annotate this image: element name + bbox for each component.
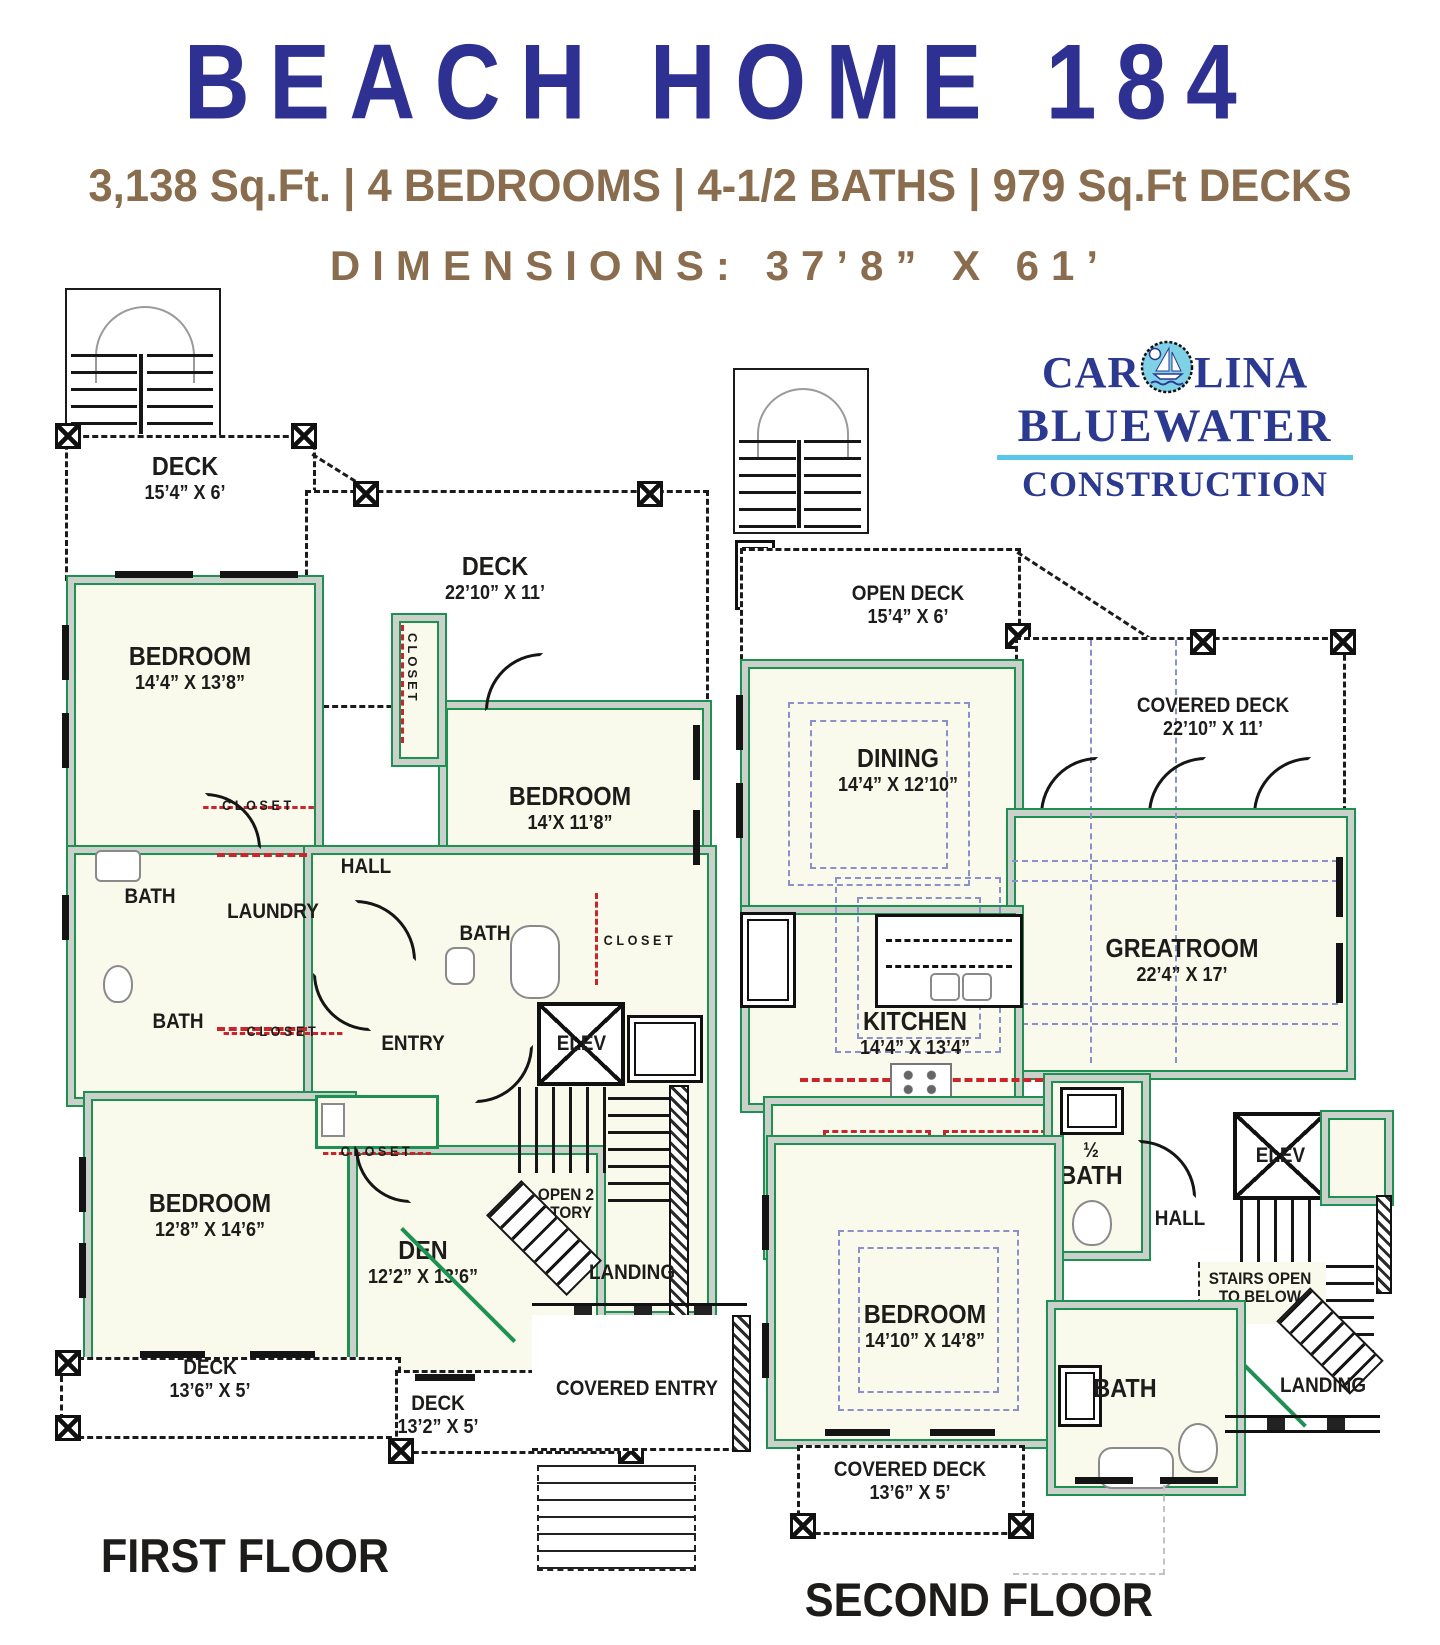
room-name: BEDROOM [129,1190,291,1218]
exterior-stairs-icon [65,288,221,440]
room-dims: 22’10” X 11’ [1123,719,1303,740]
room-dims: 13’2” X 5’ [366,1417,510,1438]
window [79,1243,86,1298]
window [762,1323,769,1378]
room-dims: 22’10” X 11’ [378,583,612,604]
room-dims: 14’4” X 13’8” [114,673,267,694]
closet-shelf [321,1103,345,1137]
room-name: KITCHEN [839,1008,992,1036]
deck-post-icon [637,481,663,507]
bedroom-right-label: BEDROOM 14’X 11’8” [485,783,656,834]
deck-diagonal [1016,551,1152,641]
room-name: DECK [378,553,612,581]
stair-treads [71,354,137,434]
covered-deck-bottom-label: COVERED DECK 13’6” X 5’ [825,1459,996,1504]
room-dims: 14’4” X 13’4” [839,1038,992,1059]
open-deck-label: OPEN DECK 15’4” X 6’ [836,583,980,628]
dining-label: DINING 14’4” X 12’10” [817,745,979,796]
exterior-stairs-icon [733,368,869,534]
room-dims: 14’4” X 12’10” [817,775,979,796]
room-name: BATH [1050,1162,1133,1190]
window [1336,857,1343,917]
elevator: ELEV [1233,1112,1327,1200]
toilet-icon [1072,1200,1112,1246]
half-bath-label: ½ BATH [1050,1140,1133,1190]
sink-icon [445,947,475,985]
sink-icon [962,973,992,1001]
room-name: COVERED DECK [1123,695,1303,717]
closet-vertical-label: CLOSET [405,633,420,704]
den-label: DEN 12’2” X 13’6” [347,1237,500,1288]
stair-divider [797,440,801,528]
island-counter-line [886,939,1012,942]
deck-post-icon [790,1513,816,1539]
deck-post-icon [353,481,379,507]
toilet-icon toilet [95,850,141,882]
greatroom-label: GREATROOM 22’4” X 17’ [1092,935,1272,986]
window [693,810,700,865]
room-name: GREATROOM [1092,935,1272,963]
bedroom-label: BEDROOM 14’10” X 14’8” [844,1301,1006,1352]
stair-divider [139,354,143,434]
covered-deck-top-label: COVERED DECK 22’10” X 11’ [1123,695,1303,740]
deck-post-icon [1330,629,1356,655]
closet-right-label: CLOSET [588,933,692,950]
interior-stairs [518,1087,608,1173]
room-name: COVERED DECK [825,1459,996,1481]
elevator: ELEV [537,1002,625,1086]
window [140,1351,205,1358]
specs-line: 3,138 Sq.Ft. | 4 BEDROOMS | 4-1/2 BATHS … [22,160,1419,212]
closet-rod [595,893,598,985]
page-title: BEACH HOME 184 [22,20,1419,143]
toilet-icon [1178,1423,1218,1473]
door-arc [1138,1140,1196,1198]
window [825,1429,890,1436]
deck-post-icon [55,1350,81,1376]
room-name: DECK [138,1357,282,1379]
room-dims: 14’10” X 14’8” [844,1331,1006,1352]
window [250,1351,315,1358]
hall-label: HALL [1126,1208,1234,1230]
covered-entry-label: COVERED ENTRY [552,1378,723,1400]
bath-label: BATH [1071,1375,1179,1403]
closet-mid-label: CLOSET [233,1024,334,1041]
room-name: DINING [817,745,979,773]
entry-label: ENTRY [359,1033,467,1055]
hall-label: HALL [312,856,420,878]
window [115,571,193,578]
window [693,725,700,780]
first-floor-caption: FIRST FLOOR [98,1528,392,1583]
window [736,695,743,750]
stair-treads [804,440,861,528]
sink-icon [1060,1087,1124,1135]
landing-label: LANDING [1265,1375,1382,1397]
kitchen-label: KITCHEN 14’4” X 13’4” [839,1008,992,1059]
window [930,1429,995,1436]
deck-bottom-center-label: DECK 13’2” X 5’ [366,1393,510,1438]
bath-left-label: BATH [96,886,204,908]
window [736,783,743,838]
entry-steps [537,1465,696,1571]
room-dims: 15’4” X 6’ [836,607,980,628]
cooktop-icon [890,1063,952,1101]
half-fraction: ½ [1050,1140,1133,1162]
elevator-side-box [627,1015,703,1083]
island-counter-line [886,965,1012,968]
bedroom-top [68,577,322,859]
deck-post-icon [55,423,81,449]
fridge-icon [740,912,796,1008]
room-dims: 13’6” X 5’ [825,1483,996,1504]
laundry-label: LAUNDRY [219,901,327,923]
window [220,571,298,578]
second-floor-plan: OPEN DECK 15’4” X 6’ COVERED DECK 22’10”… [730,365,1390,1580]
first-floor-plan: DECK 15’4” X 6’ DECK 22’10” X 11’ CLOSET… [55,285,755,1580]
landing-label: LANDING [578,1262,686,1284]
room-dims: 15’4” X 6’ [95,483,275,504]
window [79,1157,86,1212]
kitchen-island [875,914,1023,1008]
deck-post-icon [1190,629,1216,655]
room-name: BEDROOM [844,1301,1006,1329]
tub-icon [510,925,560,999]
room-dims: 12’8” X 14’6” [129,1220,291,1241]
window [1336,943,1343,1003]
room-dims: 14’X 11’8” [485,813,656,834]
floor-below-outline [1013,1485,1165,1575]
toilet-icon [103,965,133,1003]
closet-rod [401,625,404,743]
window [1075,1477,1133,1484]
room-name: DECK [95,453,275,481]
room-name: BEDROOM [114,643,267,671]
landing-railing [1225,1415,1380,1433]
window [62,713,69,768]
window [62,895,69,940]
deck-post-icon [388,1438,414,1464]
room-dims: 13’6” X 5’ [138,1381,282,1402]
deck-right-label: DECK 22’10” X 11’ [378,553,612,604]
laundry-counter [217,853,307,857]
room-dims: 22’4” X 17’ [1092,965,1272,986]
second-floor-caption: SECOND FLOOR [805,1572,1145,1627]
stair-wall-hatch [1376,1195,1392,1294]
room-name: OPEN DECK [836,583,980,605]
window [62,625,69,680]
sink-icon [930,973,960,1001]
stair-treads [739,440,796,528]
stair-treads [147,354,213,434]
room-name: BEDROOM [485,783,656,811]
deck-post-icon [291,423,317,449]
elevator-side-room [1322,1112,1392,1204]
room-dims: 12’2” X 13’6” [347,1267,500,1288]
bedroom-top-label: BEDROOM 14’4” X 13’8” [114,643,267,694]
room-name: DECK [366,1393,510,1415]
window [762,1195,769,1250]
deck-post-icon [55,1415,81,1441]
deck-top-label: DECK 15’4” X 6’ [95,453,275,504]
window [415,1374,475,1381]
deck-bottom-left-label: DECK 13’6” X 5’ [138,1357,282,1402]
interior-stairs [1240,1200,1324,1262]
dimensions-line: DIMENSIONS: 37’8” X 61’ [0,242,1440,290]
window [1160,1477,1218,1484]
bedroom-bottom-label: BEDROOM 12’8” X 14’6” [129,1190,291,1241]
bath-mid-label: BATH [124,1011,232,1033]
